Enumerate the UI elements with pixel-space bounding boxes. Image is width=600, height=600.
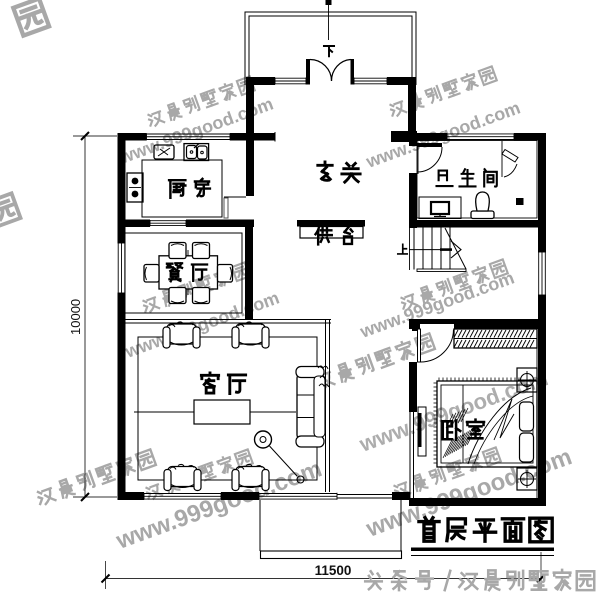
svg-text:10000: 10000 <box>68 299 83 335</box>
svg-text:11500: 11500 <box>315 563 352 578</box>
